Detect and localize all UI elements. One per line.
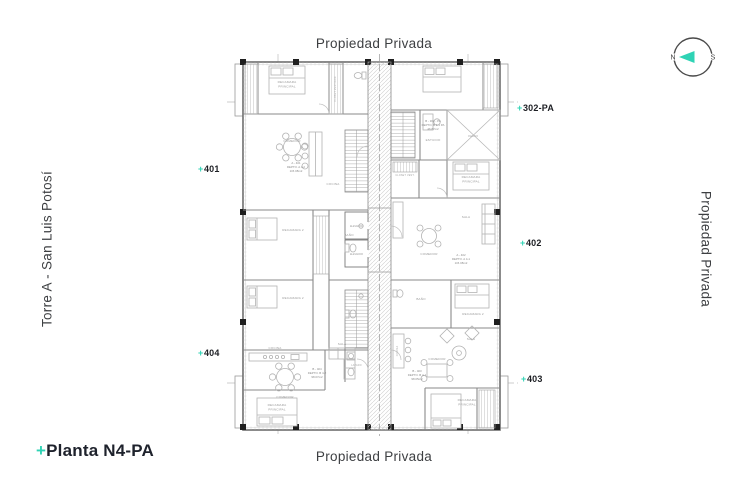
depto-label: 98.05m2 <box>411 377 423 381</box>
room-label: COMEDOR <box>283 139 301 143</box>
plus-accent: + <box>36 441 46 460</box>
depto-label: 115.08m2 <box>455 261 468 265</box>
room-label: CLOSET VESTIDOR <box>334 76 337 101</box>
room-label: RECAMARA <box>462 175 482 179</box>
room-label: COCINA <box>396 346 399 357</box>
room-label: PRINCIPAL <box>268 408 286 412</box>
unit-number: 302-PA <box>523 103 554 113</box>
unit-label-404: +404 <box>198 348 220 358</box>
room-label: RECAMARA <box>278 80 298 84</box>
bed-glyph <box>247 286 277 308</box>
depto-label: 115.08m2 <box>290 169 303 173</box>
room-label: SALA <box>338 342 347 346</box>
plus-accent: + <box>198 164 203 174</box>
window-mullions-left <box>244 64 247 426</box>
room-label: SALA <box>467 337 476 341</box>
compass-icon: N S <box>663 27 723 87</box>
central-corridor <box>368 54 391 436</box>
room-label: LAVADO <box>351 364 362 367</box>
room-label: PRINCIPAL <box>458 403 476 407</box>
balcony <box>235 64 243 116</box>
bed-glyph <box>431 394 461 428</box>
plus-accent: + <box>198 348 203 358</box>
plan-title: +Planta N4-PA <box>36 441 154 461</box>
room-label: RECAMARA 2 <box>282 228 304 232</box>
room-label: RECAMARA 2 <box>462 312 484 316</box>
room-label: ESTUDIO <box>426 138 441 142</box>
unit-number: 402 <box>526 238 542 248</box>
room-label: RECAMARA <box>268 403 288 407</box>
room-label: SALA <box>462 215 471 219</box>
unit-label-302pa: +302-PA <box>517 103 554 113</box>
unit-number: 403 <box>527 374 543 384</box>
tower-label-left: Torre A - San Luis Potosí <box>40 171 55 327</box>
unit-label-403: +403 <box>521 374 543 384</box>
room-label: BAÑO <box>416 296 426 301</box>
room-label: COCINA <box>327 182 341 186</box>
bed-glyph <box>455 284 489 308</box>
property-label-right: Propiedad Privada <box>699 191 714 307</box>
balcony <box>500 376 508 428</box>
room-label: COMEDOR <box>428 357 446 361</box>
room-label: PRINCIPAL <box>462 180 480 184</box>
unit-label-402: +402 <box>520 238 542 248</box>
unit-number: 404 <box>204 348 220 358</box>
compass-needle-icon <box>679 51 695 63</box>
plan-title-text: Planta N4-PA <box>46 441 154 460</box>
bed-glyph <box>423 66 461 92</box>
property-label-top: Propiedad Privada <box>316 36 432 51</box>
room-label: COCINA <box>269 346 283 350</box>
bed-glyph <box>247 218 277 240</box>
unit-label-401: +401 <box>198 164 220 174</box>
room-label: PRINCIPAL <box>278 85 296 89</box>
balcony <box>235 376 243 428</box>
depto-label: 46.87m2 <box>427 127 439 131</box>
floor-plan: ELEVADOR ELEVADOR <box>225 50 520 440</box>
room-label: RECAMARA <box>458 398 478 402</box>
compass-north: N <box>670 55 675 62</box>
compass-south: S <box>711 55 716 62</box>
plus-accent: + <box>521 374 526 384</box>
room-label: COMEDOR <box>276 395 294 399</box>
room-label: RECAMARA 2 <box>282 296 304 300</box>
elevator-label: ELEVADOR <box>350 253 363 256</box>
room-label: CLOSET VEST. <box>395 174 414 177</box>
property-label-bottom: Propiedad Privada <box>316 449 432 464</box>
unit-number: 401 <box>204 164 220 174</box>
room-label: VACIO <box>468 134 479 138</box>
window-mullions-right <box>497 64 500 426</box>
room-label: COMEDOR <box>420 252 438 256</box>
plus-accent: + <box>520 238 525 248</box>
depto-label: 98.07m2 <box>311 375 323 379</box>
elevator-label: ELEVADOR <box>350 225 363 228</box>
balcony <box>500 64 508 116</box>
room-label: BAÑO <box>344 232 354 237</box>
